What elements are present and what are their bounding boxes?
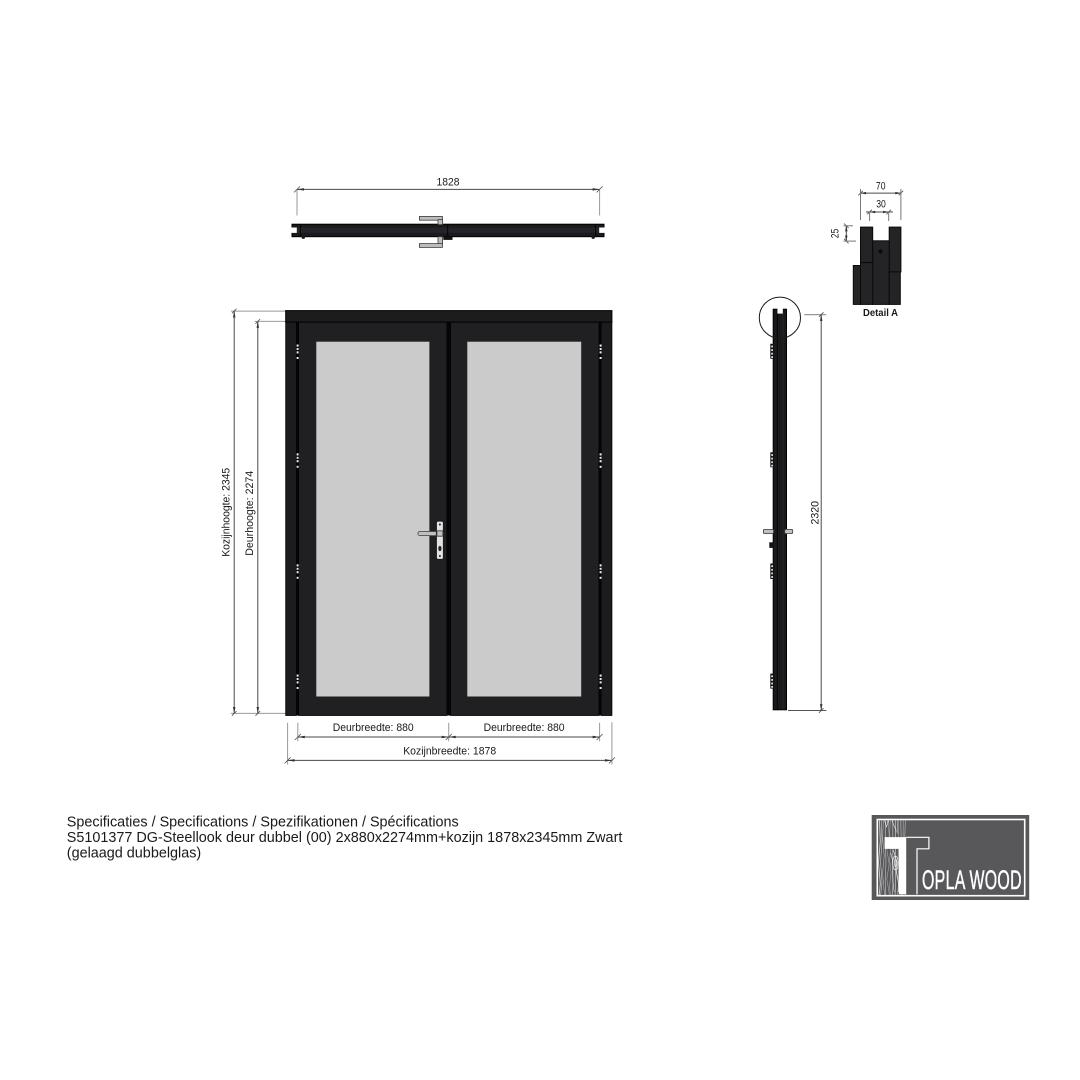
svg-text:S5101377 DG-Steellook deur dub: S5101377 DG-Steellook deur dubbel (00) 2… xyxy=(67,830,623,846)
svg-text:1828: 1828 xyxy=(437,177,460,189)
svg-text:70: 70 xyxy=(876,180,886,192)
svg-text:30: 30 xyxy=(876,199,886,211)
svg-text:OPLA WOOD: OPLA WOOD xyxy=(922,865,1022,895)
svg-text:Deurbreedte: 880: Deurbreedte: 880 xyxy=(484,722,565,734)
svg-text:Kozijnhoogte: 2345: Kozijnhoogte: 2345 xyxy=(221,468,233,557)
svg-text:Specificaties / Specifications: Specificaties / Specifications / Spezifi… xyxy=(67,815,459,831)
svg-text:Deurhoogte: 2274: Deurhoogte: 2274 xyxy=(244,471,256,556)
svg-text:2320: 2320 xyxy=(810,501,822,525)
svg-text:Detail A: Detail A xyxy=(863,307,898,319)
svg-text:(gelaagd dubbelglas): (gelaagd dubbelglas) xyxy=(67,846,201,862)
svg-text:Kozijnbreedte: 1878: Kozijnbreedte: 1878 xyxy=(403,746,496,758)
svg-text:25: 25 xyxy=(830,229,842,239)
svg-text:Deurbreedte: 880: Deurbreedte: 880 xyxy=(333,722,414,734)
